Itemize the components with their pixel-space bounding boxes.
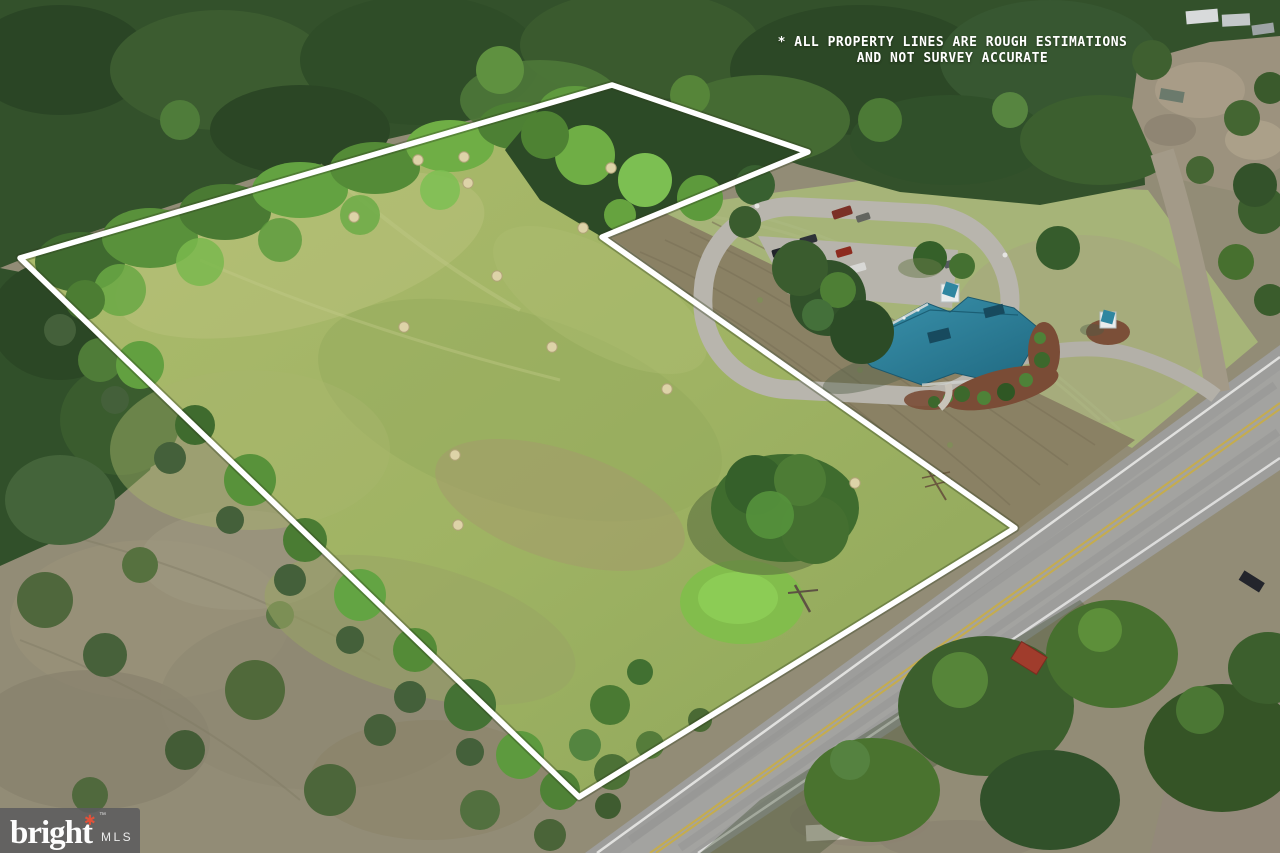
brightmls-watermark: bright ✱ ™ MLS (0, 808, 140, 853)
hay-bale (349, 212, 359, 222)
disclaimer-text: * ALL PROPERTY LINES ARE ROUGH ESTIMATIO… (745, 35, 1160, 67)
aerial-listing-photo: * ALL PROPERTY LINES ARE ROUGH ESTIMATIO… (0, 0, 1280, 853)
trademark-symbol: ™ (99, 812, 106, 819)
hay-bale (606, 163, 616, 173)
hay-bale (492, 271, 502, 281)
hay-bale (459, 152, 469, 162)
brightmls-star-icon: ✱ (84, 813, 96, 827)
hay-bale (662, 384, 672, 394)
brightmls-logo-suffix: MLS (101, 830, 133, 844)
hay-bale (413, 155, 423, 165)
aerial-scene (0, 0, 1280, 853)
hay-bale (850, 478, 860, 488)
hay-bale (453, 520, 463, 530)
disclaimer-line-2: AND NOT SURVEY ACCURATE (745, 51, 1160, 67)
brightmls-logo-brand: bright (10, 817, 92, 850)
hay-bale (450, 450, 460, 460)
hay-bale (578, 223, 588, 233)
hay-bale (463, 178, 473, 188)
cupola (941, 281, 959, 302)
hay-bale (399, 322, 409, 332)
disclaimer-line-1: * ALL PROPERTY LINES ARE ROUGH ESTIMATIO… (745, 35, 1160, 51)
hay-bale (547, 342, 557, 352)
